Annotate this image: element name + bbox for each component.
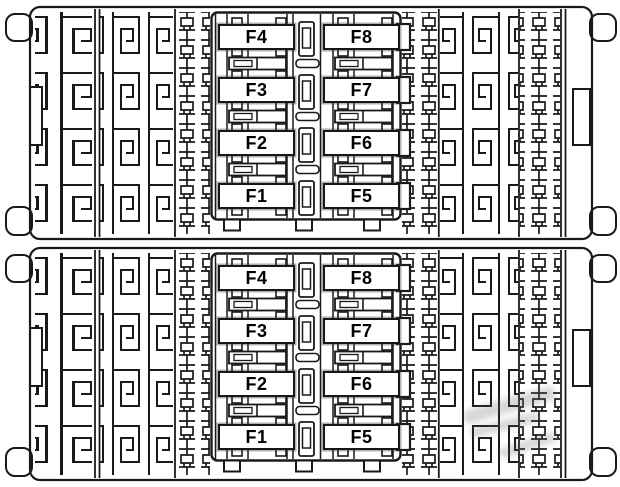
fuse-f7-top: F7	[323, 77, 400, 103]
fuse-f4-top: F4	[218, 24, 295, 50]
fuse-f3-bottom: F3	[218, 318, 295, 344]
fuse-f2-top: F2	[218, 130, 295, 156]
fuse-f6-top: F6	[323, 130, 400, 156]
fuse-f2-bottom: F2	[218, 371, 295, 397]
fuse-box-diagram: F4 F8 F3 F7 F2 F6 F1 F5 F4 F8 F3 F7 F2 F…	[0, 0, 620, 487]
fuse-f5-top: F5	[323, 183, 400, 209]
fuse-f5-bottom: F5	[323, 424, 400, 450]
fuse-f6-bottom: F6	[323, 371, 400, 397]
fuse-f1-bottom: F1	[218, 424, 295, 450]
fuse-f7-bottom: F7	[323, 318, 400, 344]
fuse-f3-top: F3	[218, 77, 295, 103]
fuse-f8-top: F8	[323, 24, 400, 50]
fuse-f4-bottom: F4	[218, 265, 295, 291]
fuse-f1-top: F1	[218, 183, 295, 209]
fuse-f8-bottom: F8	[323, 265, 400, 291]
